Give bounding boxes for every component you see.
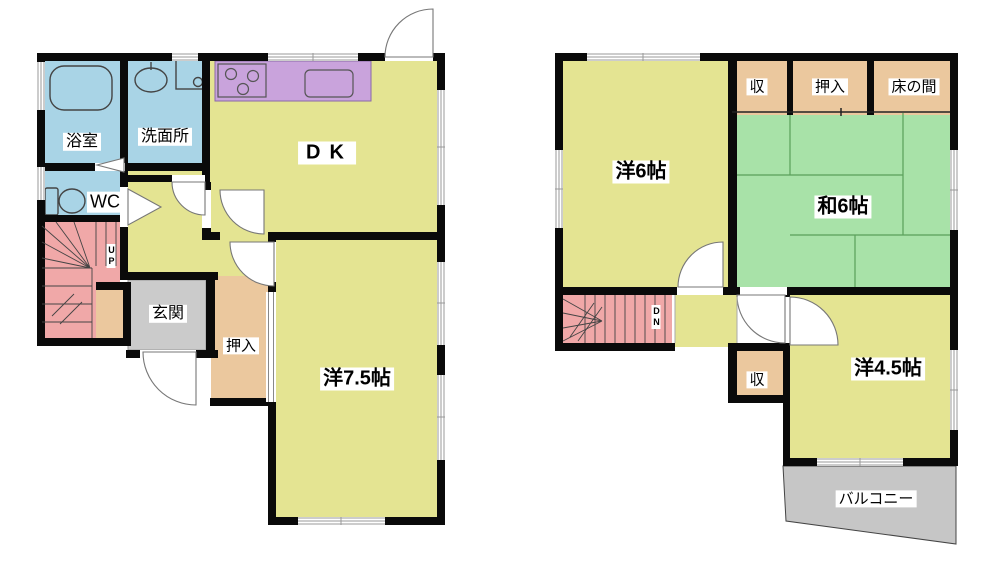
japanese6-label: 和6帖 — [814, 196, 871, 219]
entrance-label: 玄関 — [149, 305, 187, 323]
first-floor-plan — [37, 9, 445, 525]
toilet-label: WC — [87, 192, 123, 213]
closet2f-label: 押入 — [812, 78, 848, 95]
western75-label: 洋7.5帖 — [320, 368, 394, 391]
closet1f-label: 押入 — [223, 337, 259, 354]
kitchen-back-door — [385, 9, 433, 57]
floor-plan-page: 浴室 洗面所 DK WC UP 玄関 押入 洋7.5帖 洋6帖 収 押入 床の間… — [0, 0, 1000, 562]
japanese-room-door — [737, 295, 785, 343]
bathroom-floor — [42, 58, 125, 168]
floor-plan-drawing — [0, 0, 1000, 562]
balcony-label: バルコニー — [836, 490, 917, 507]
western45-label: 洋4.5帖 — [851, 358, 925, 381]
second-floor-plan — [555, 53, 958, 544]
stairs-up-label: UP — [107, 244, 116, 268]
hall2-floor — [675, 291, 737, 347]
bathroom-label: 浴室 — [63, 133, 101, 151]
dk-label: DK — [298, 142, 356, 165]
entrance-door — [143, 352, 196, 405]
storage-bottom-label: 収 — [746, 371, 767, 388]
washroom-floor — [122, 58, 207, 178]
tokonoma-label: 床の間 — [888, 78, 939, 95]
storage-top-label: 収 — [746, 78, 767, 95]
under-stairs-closet — [96, 290, 124, 338]
stairs-down-label: DN — [652, 305, 661, 329]
western6-label: 洋6帖 — [612, 161, 669, 184]
washroom-label: 洗面所 — [138, 128, 192, 146]
kitchen-counter — [215, 61, 371, 101]
